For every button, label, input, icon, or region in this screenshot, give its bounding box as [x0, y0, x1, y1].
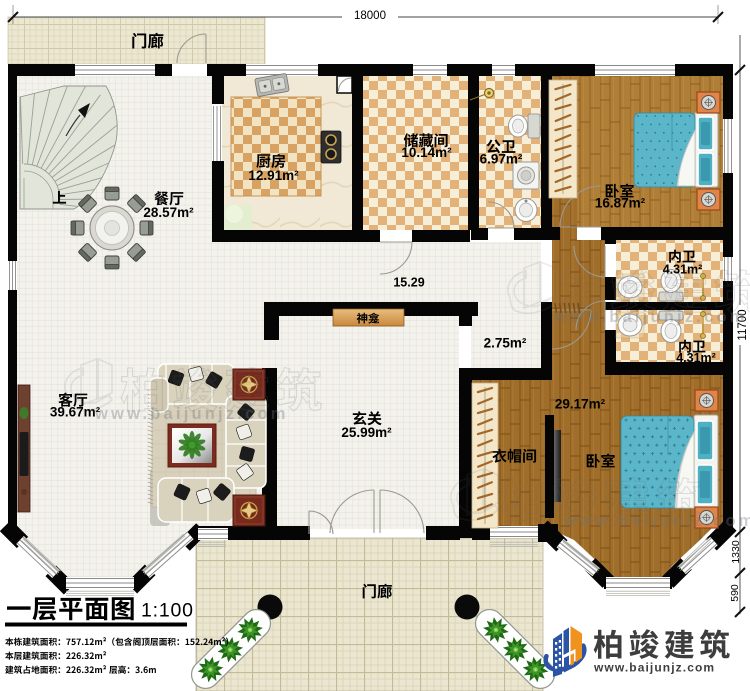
svg-text:15.29: 15.29	[393, 276, 424, 290]
svg-text:28.57m²: 28.57m²	[143, 205, 194, 220]
svg-text:10.14m²: 10.14m²	[401, 145, 452, 160]
svg-text:6.97m²: 6.97m²	[480, 152, 523, 167]
svg-text:590: 590	[729, 584, 741, 602]
svg-text:www.baijunjz.com: www.baijunjz.com	[593, 661, 715, 675]
svg-text:18000: 18000	[354, 10, 386, 22]
svg-text:4.31m²: 4.31m²	[676, 351, 716, 365]
svg-text:25.99m²: 25.99m²	[341, 425, 392, 440]
svg-text:www.baijunjz.com: www.baijunjz.com	[562, 512, 750, 530]
svg-text:16.87m²: 16.87m²	[595, 196, 646, 211]
svg-text:www.baijunjz.com: www.baijunjz.com	[553, 308, 748, 326]
svg-text:29.17m²: 29.17m²	[555, 397, 606, 412]
svg-text:12.91m²: 12.91m²	[248, 168, 299, 183]
svg-text:39.67m²: 39.67m²	[50, 405, 101, 420]
svg-text:2.75m²: 2.75m²	[484, 336, 527, 351]
svg-text:1330: 1330	[730, 540, 742, 564]
svg-text:1:100: 1:100	[141, 600, 194, 622]
svg-text:4.31m²: 4.31m²	[663, 263, 703, 277]
svg-text:www.baijunjz.com: www.baijunjz.com	[94, 405, 289, 423]
